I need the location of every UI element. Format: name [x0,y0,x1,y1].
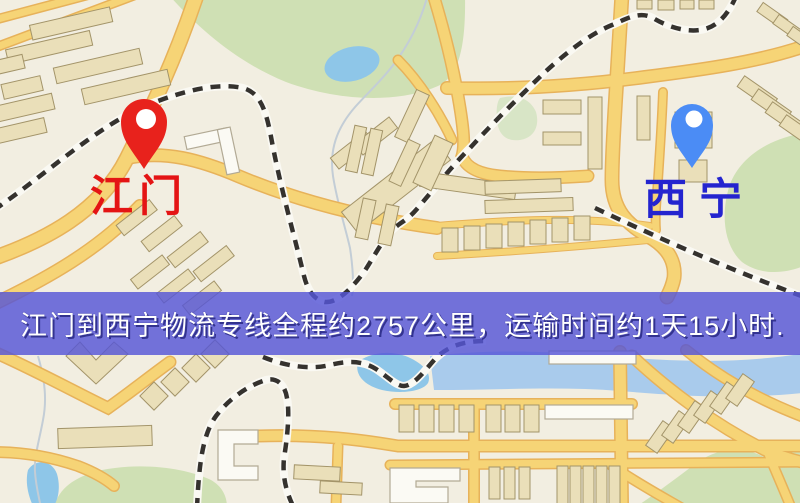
destination-location-pin-icon [671,104,713,168]
map-background [0,0,800,503]
route-info-banner: 江门到西宁物流专线全程约2757公里，运输时间约1天15小时. [0,292,800,355]
route-map: 江门 西宁 江门到西宁物流专线全程约2757公里，运输时间约1天15小时. [0,0,800,503]
destination-city-label: 西宁 [644,179,754,222]
route-info-text: 江门到西宁物流专线全程约2757公里，运输时间约1天15小时. [0,304,785,343]
origin-city-label: 江门 [90,176,188,219]
